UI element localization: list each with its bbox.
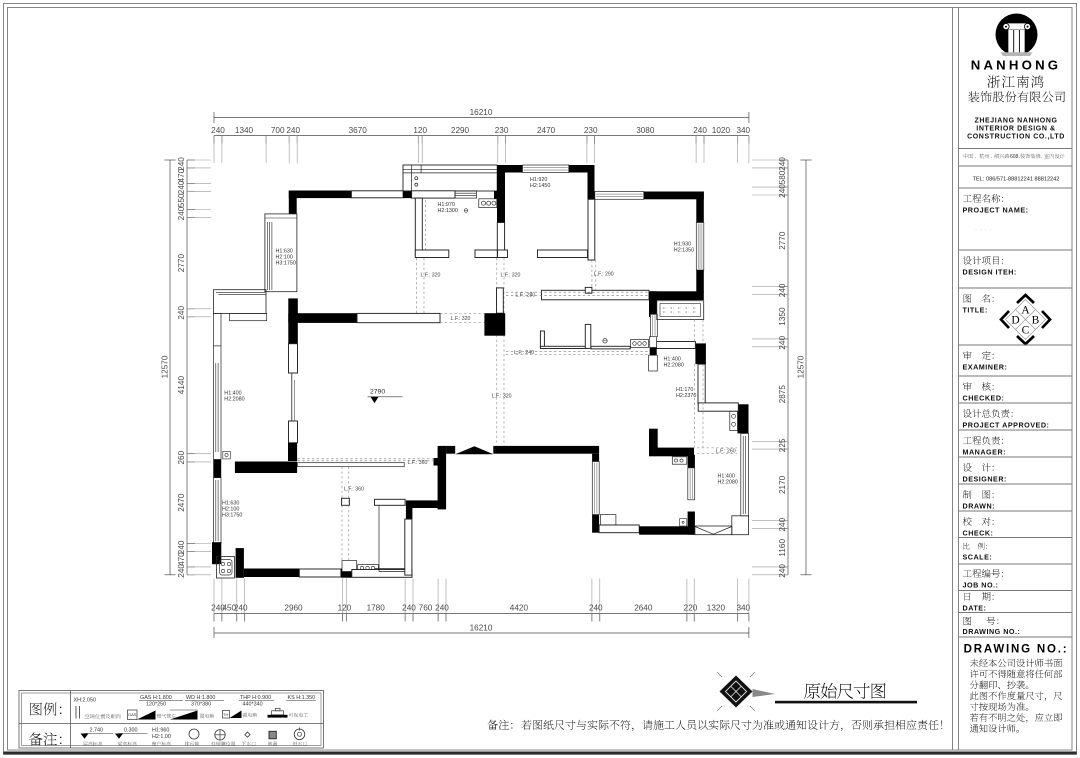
svg-text:ZHEJIANG NANHONG: ZHEJIANG NANHONG xyxy=(974,118,1057,125)
svg-text:240: 240 xyxy=(177,564,186,578)
svg-text:L.F.: 320: L.F.: 320 xyxy=(421,273,441,279)
svg-text:H2:2080: H2:2080 xyxy=(718,480,738,486)
svg-text:240: 240 xyxy=(778,564,787,578)
svg-text:2290: 2290 xyxy=(451,126,470,135)
svg-text:550: 550 xyxy=(177,193,186,207)
svg-text:240: 240 xyxy=(589,604,603,613)
svg-text:240: 240 xyxy=(286,126,300,135)
svg-text:H2:1350: H2:1350 xyxy=(674,248,694,254)
svg-text:SCALE:: SCALE: xyxy=(963,553,993,562)
svg-text:NANHONG: NANHONG xyxy=(971,58,1062,73)
svg-text:240: 240 xyxy=(778,517,787,531)
svg-text:12570: 12570 xyxy=(161,355,170,378)
svg-text:240: 240 xyxy=(234,604,248,613)
svg-text:L.F.: 360: L.F.: 360 xyxy=(344,487,364,493)
svg-text:2790: 2790 xyxy=(370,389,385,396)
svg-text:.: . xyxy=(991,154,992,160)
svg-text:2875: 2875 xyxy=(778,385,787,404)
svg-text:240: 240 xyxy=(177,157,186,171)
svg-text:JOB NO.:: JOB NO.: xyxy=(963,581,999,590)
svg-text:PROJECT NAME:: PROJECT NAME: xyxy=(963,206,1029,215)
svg-text:2770: 2770 xyxy=(778,231,787,250)
svg-text:240: 240 xyxy=(177,540,186,554)
svg-text:GAS H:1.800: GAS H:1.800 xyxy=(140,695,172,701)
svg-text:240: 240 xyxy=(177,206,186,220)
svg-text:440*340: 440*340 xyxy=(243,702,263,708)
svg-text:240: 240 xyxy=(211,126,225,135)
svg-text:12570: 12570 xyxy=(797,355,806,378)
svg-text:240: 240 xyxy=(177,180,186,194)
svg-text:L.F.: 280: L.F.: 280 xyxy=(515,292,535,298)
svg-text:1340: 1340 xyxy=(235,126,254,135)
svg-text:700: 700 xyxy=(271,126,285,135)
svg-text:240: 240 xyxy=(778,157,787,171)
svg-text:CONSTRUCTION CO.,LTD: CONSTRUCTION CO.,LTD xyxy=(967,134,1065,141)
svg-text:A: A xyxy=(1021,305,1030,317)
svg-text:L.F.: 260: L.F.: 260 xyxy=(716,449,736,455)
svg-text:608.: 608. xyxy=(1010,154,1020,160)
svg-text:WD H:1.800: WD H:1.800 xyxy=(186,695,215,701)
svg-text:2.740: 2.740 xyxy=(90,728,104,734)
svg-text:TEL: 086/571-88812241 888: TEL: 086/571-88812241 88812242 xyxy=(973,177,1060,183)
svg-text:DRAWN:: DRAWN: xyxy=(963,502,996,511)
svg-text:H3:1750: H3:1750 xyxy=(276,261,296,267)
svg-text:TH: TH xyxy=(223,712,228,717)
svg-text:1320: 1320 xyxy=(707,604,726,613)
svg-text:H2:1300: H2:1300 xyxy=(438,208,458,214)
svg-text:H2:2370: H2:2370 xyxy=(676,393,696,399)
svg-text:240: 240 xyxy=(778,336,787,350)
svg-text:XH:2.050: XH:2.050 xyxy=(74,698,96,704)
svg-text:4140: 4140 xyxy=(177,376,186,395)
svg-text:120: 120 xyxy=(338,604,352,613)
svg-text:1160: 1160 xyxy=(778,539,787,557)
svg-text:L.F.: 320: L.F.: 320 xyxy=(451,316,471,322)
svg-text:MANAGER:: MANAGER: xyxy=(963,448,1007,457)
svg-text:2640: 2640 xyxy=(634,604,653,613)
svg-text:H2:2080: H2:2080 xyxy=(664,363,684,369)
svg-text:H2:1450: H2:1450 xyxy=(530,183,550,189)
svg-text:GAS: GAS xyxy=(128,712,137,717)
svg-text:EXAMINER:: EXAMINER: xyxy=(963,363,1008,372)
svg-text:.: . xyxy=(1041,154,1042,160)
svg-text:4420: 4420 xyxy=(510,604,529,613)
svg-text:DRAWING NO.:: DRAWING NO.: xyxy=(964,644,1069,656)
svg-text:470: 470 xyxy=(177,168,186,182)
svg-text:2470: 2470 xyxy=(537,126,556,135)
svg-text:TITLE:: TITLE: xyxy=(963,306,988,315)
svg-text:L.F.: 240: L.F.: 240 xyxy=(514,350,534,356)
svg-text:L.F.: 290: L.F.: 290 xyxy=(594,272,614,278)
svg-text:470: 470 xyxy=(177,552,186,566)
svg-text:240: 240 xyxy=(435,604,449,613)
svg-text:0.300: 0.300 xyxy=(124,728,138,734)
svg-text:1020: 1020 xyxy=(712,126,731,135)
svg-text:CHECKED:: CHECKED: xyxy=(963,394,1005,403)
svg-text:H2:1.00: H2:1.00 xyxy=(152,734,171,740)
svg-text:370*380: 370*380 xyxy=(191,702,211,708)
svg-text:DRAWING NO.:: DRAWING NO.: xyxy=(963,627,1021,636)
svg-text:220: 220 xyxy=(684,604,698,613)
svg-text:230: 230 xyxy=(495,126,509,135)
svg-text:L.F.: 360: L.F.: 360 xyxy=(408,460,428,466)
svg-text:2170: 2170 xyxy=(778,475,787,494)
svg-text:.: . xyxy=(975,154,976,160)
svg-text:H2:2080: H2:2080 xyxy=(224,397,244,403)
svg-text:120*250: 120*250 xyxy=(146,702,166,708)
svg-text:L.F.: 320: L.F.: 320 xyxy=(492,394,512,400)
svg-text:THP H:0.900: THP H:0.900 xyxy=(240,695,271,701)
svg-text:1780: 1780 xyxy=(367,604,386,613)
svg-text:230: 230 xyxy=(584,126,598,135)
svg-text:D: D xyxy=(1011,315,1019,327)
svg-text:L.F.: 320: L.F.: 320 xyxy=(501,273,521,279)
svg-text:CHECK:: CHECK: xyxy=(963,529,994,538)
svg-text:225: 225 xyxy=(778,438,787,452)
svg-text:16210: 16210 xyxy=(470,624,493,633)
svg-text:16210: 16210 xyxy=(470,108,493,117)
svg-text:120: 120 xyxy=(413,126,427,135)
svg-text:KS H:1.350: KS H:1.350 xyxy=(288,695,316,701)
svg-text:PROJECT APPROVED:: PROJECT APPROVED: xyxy=(963,421,1050,430)
svg-text:580: 580 xyxy=(778,170,787,184)
svg-text:DESIGNER:: DESIGNER: xyxy=(963,475,1007,484)
svg-text:260: 260 xyxy=(177,450,186,464)
svg-text:2470: 2470 xyxy=(177,493,186,512)
svg-text:DESIGN ITEH:: DESIGN ITEH: xyxy=(963,268,1017,277)
svg-text:240: 240 xyxy=(778,184,787,198)
svg-text:H1:960: H1:960 xyxy=(152,728,169,734)
svg-text:DATE:: DATE: xyxy=(963,604,987,613)
svg-text:340: 340 xyxy=(736,604,750,613)
svg-text:3670: 3670 xyxy=(349,126,368,135)
svg-text:H3:1750: H3:1750 xyxy=(222,513,242,519)
svg-text:B: B xyxy=(1032,315,1040,327)
svg-text:240: 240 xyxy=(693,126,707,135)
svg-text:240: 240 xyxy=(177,306,186,320)
svg-text:240: 240 xyxy=(778,283,787,297)
svg-text:760: 760 xyxy=(419,604,433,613)
svg-text:2960: 2960 xyxy=(284,604,303,613)
svg-text:240: 240 xyxy=(402,604,416,613)
svg-text:1350: 1350 xyxy=(778,307,787,326)
svg-text:C: C xyxy=(1022,325,1030,337)
svg-text:INTERIOR DESIGN &: INTERIOR DESIGN & xyxy=(976,126,1055,133)
svg-text:340: 340 xyxy=(736,126,750,135)
svg-text:3080: 3080 xyxy=(636,126,655,135)
svg-text:2770: 2770 xyxy=(177,254,186,273)
